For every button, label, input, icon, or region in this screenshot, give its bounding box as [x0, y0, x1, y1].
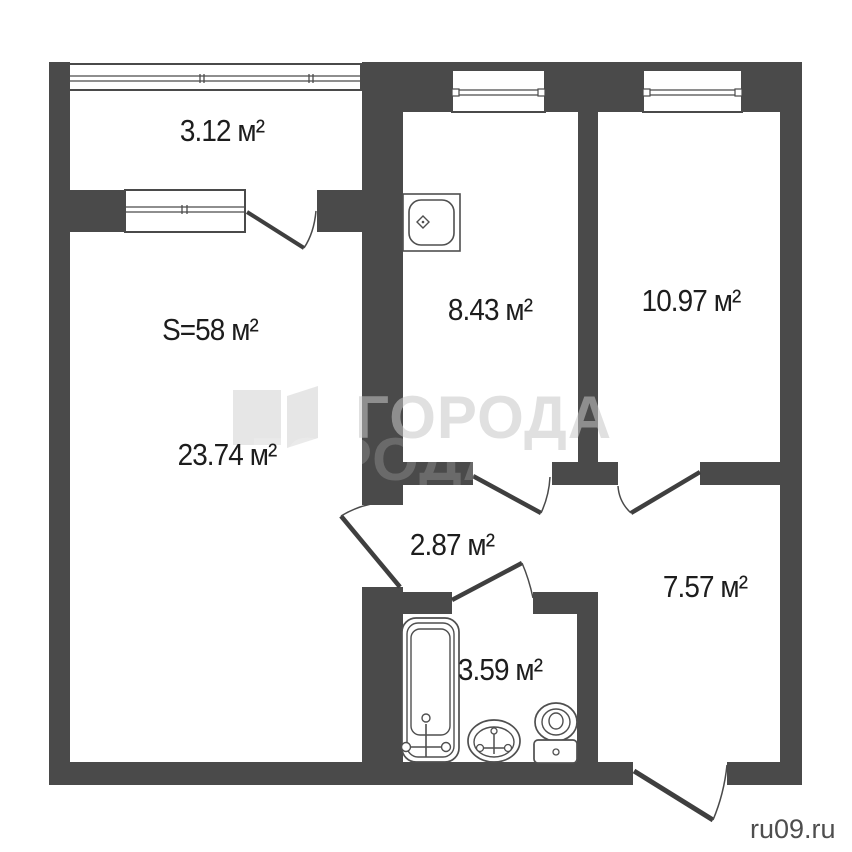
balcony-window: [69, 64, 361, 90]
balcony-living-window: [125, 190, 245, 232]
wall-bath-right: [577, 614, 598, 762]
bedroom-door: [618, 472, 700, 513]
wall-living-divider-lower: [362, 587, 403, 762]
kitchen-sink-icon: [403, 194, 460, 251]
wall-balcony-divider-left: [70, 190, 125, 232]
floor-plan: ГОРОДА ГОРОДА 3.12 м² 8.43 м² 10.97 м² S…: [0, 0, 852, 852]
room-label-entry: 7.57 м²: [663, 569, 747, 605]
bathtub-icon: [402, 618, 460, 762]
toilet-icon: [534, 703, 577, 763]
wall-bottom-left: [49, 762, 633, 785]
room-label-living: 23.74 м²: [178, 437, 277, 473]
wall-hall-top-2: [552, 462, 618, 485]
site-watermark: ru09.ru: [750, 814, 836, 845]
wall-bath-top-right: [533, 592, 598, 614]
room-label-hallway: 2.87 м²: [410, 527, 494, 563]
wall-right: [780, 62, 802, 785]
wall-bath-top-left: [403, 592, 452, 614]
room-label-bathroom: 3.59 м²: [458, 652, 542, 688]
wall-left: [49, 62, 70, 785]
room-label-balcony: 3.12 м²: [180, 113, 264, 149]
kitchen-window: [452, 70, 545, 112]
living-room-door: [341, 502, 402, 587]
wall-bottom-right: [727, 762, 802, 785]
watermark-brand-ghost: ГОРОДА: [250, 425, 507, 494]
bedroom-window: [643, 70, 742, 112]
balcony-door: [247, 211, 316, 248]
wash-basin-icon: [468, 720, 520, 762]
bathroom-door: [452, 563, 533, 600]
room-label-kitchen: 8.43 м²: [448, 292, 532, 328]
room-label-bedroom: 10.97 м²: [642, 283, 741, 319]
wall-balcony-divider-right: [317, 190, 362, 232]
entry-door: [634, 765, 727, 820]
wall-hall-top-3: [700, 462, 780, 485]
total-area-label: S=58 м²: [162, 312, 258, 348]
